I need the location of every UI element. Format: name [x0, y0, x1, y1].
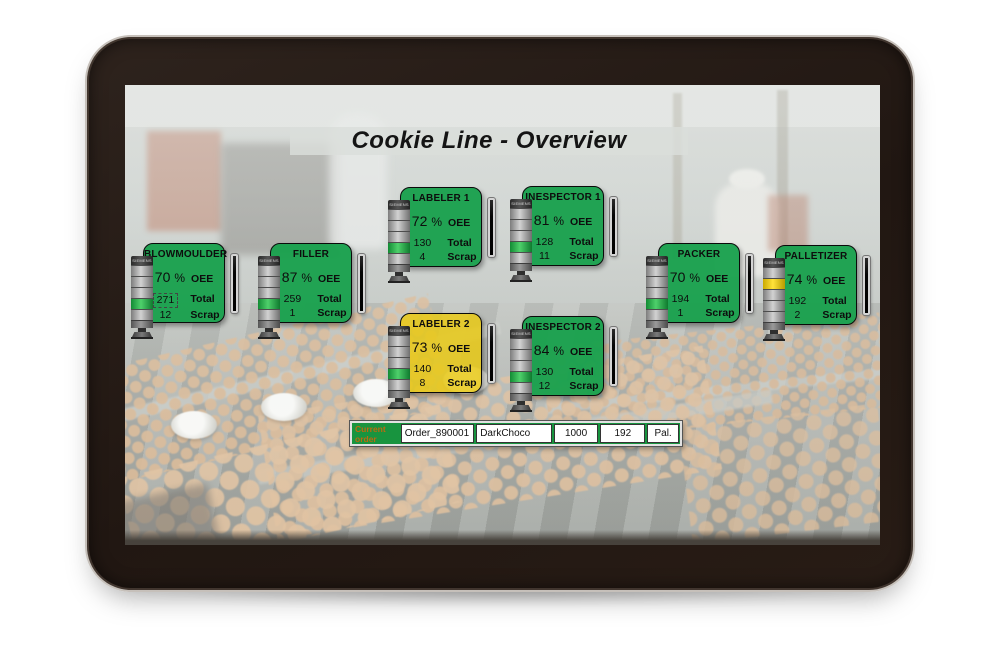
scrap-value: 2 — [780, 309, 814, 322]
stack-light-base — [388, 264, 410, 272]
hmi-overlay: Cookie Line - Overview SIEMENS — [125, 85, 880, 545]
scrap-value: 1 — [275, 307, 309, 320]
order-produced-field[interactable]: 192 — [600, 424, 645, 443]
light-segment — [646, 276, 668, 287]
total-label: Total — [447, 363, 476, 376]
stack-light-foot — [764, 334, 784, 339]
light-segment — [763, 300, 785, 311]
stack-light-cap: SIEMENS — [510, 329, 532, 338]
stack-light-cap: SIEMENS — [646, 256, 668, 265]
stack-light-base — [510, 393, 532, 401]
total-value: 259 — [275, 293, 309, 306]
stack-light-icon: SIEMENS — [763, 258, 785, 341]
light-segment — [388, 346, 410, 357]
light-segment — [510, 208, 532, 219]
stack-light-mat — [258, 337, 280, 339]
light-segment-green — [510, 241, 532, 252]
stack-light-base — [258, 320, 280, 328]
level-indicator-bar — [746, 254, 753, 313]
machine-panel-filler[interactable]: FILLER 87 % OEE 259 Total 1 Scrap — [270, 243, 352, 323]
brand-label: SIEMENS — [389, 328, 408, 333]
oee-value: 74 — [787, 271, 803, 287]
machine-panel-packer[interactable]: PACKER 70 % OEE 194 Total 1 Scrap — [658, 243, 740, 323]
stack-light-foot — [647, 332, 667, 337]
total-value: 130 — [405, 237, 439, 250]
oee-value: 70 — [670, 269, 686, 285]
stack-light-stem — [138, 328, 146, 332]
scrap-value: 12 — [527, 380, 561, 393]
light-segment-green — [388, 242, 410, 253]
stack-light-mat — [388, 407, 410, 409]
percent-sign: % — [806, 273, 817, 287]
stack-light-base — [763, 322, 785, 330]
scrap-label: Scrap — [447, 377, 476, 390]
scrap-value: 12 — [148, 309, 182, 322]
stack-light-stem — [265, 328, 273, 332]
level-indicator-bar — [488, 324, 495, 383]
light-segment — [258, 287, 280, 298]
current-order-label: Current order — [353, 424, 399, 443]
stack-light-stem — [395, 272, 403, 276]
scrap-value: 8 — [405, 377, 439, 390]
stack-light-base — [646, 320, 668, 328]
scrap-label: Scrap — [705, 307, 734, 320]
level-indicator-bar — [231, 254, 238, 313]
machine-name: INESPECTOR 1 — [523, 192, 603, 203]
scrap-value: 4 — [405, 251, 439, 264]
percent-sign: % — [431, 215, 442, 229]
stack-light-icon: SIEMENS — [510, 199, 532, 282]
machine-labeler-2: SIEMENS LABELER 2 73 — [388, 313, 498, 421]
stack-light-foot — [389, 402, 409, 407]
stack-light-cap: SIEMENS — [510, 199, 532, 208]
light-segment — [763, 311, 785, 322]
total-value: 194 — [663, 293, 697, 306]
stack-light-foot — [511, 275, 531, 280]
brand-label: SIEMENS — [511, 331, 530, 336]
oee-label: OEE — [318, 273, 340, 285]
oee-label: OEE — [570, 216, 592, 228]
stack-light-mat — [763, 339, 785, 341]
oee-value: 84 — [534, 342, 550, 358]
percent-sign: % — [174, 271, 185, 285]
scrap-label: Scrap — [822, 309, 851, 322]
light-segment-green — [131, 298, 153, 309]
light-segment — [388, 220, 410, 231]
total-value: 192 — [780, 295, 814, 308]
light-segment — [131, 265, 153, 276]
brand-label: SIEMENS — [764, 260, 783, 265]
stack-light-base — [510, 263, 532, 271]
tablet-device: Cookie Line - Overview SIEMENS — [85, 35, 915, 592]
machine-inespector-2: SIEMENS INESPECTOR 2 8 — [510, 316, 620, 424]
stack-light-mat — [510, 410, 532, 412]
light-segment — [131, 309, 153, 320]
machine-name: LABELER 1 — [401, 193, 481, 204]
hmi-screen: Cookie Line - Overview SIEMENS — [125, 85, 880, 545]
machine-name: INESPECTOR 2 — [523, 322, 603, 333]
oee-label: OEE — [706, 273, 728, 285]
total-label: Total — [190, 293, 219, 308]
machine-name: BLOWMOULDER — [144, 249, 224, 260]
order-unit-field[interactable]: Pal. — [647, 424, 679, 443]
machine-panel-labeler-2[interactable]: LABELER 2 73 % OEE 140 Total 8 Scrap — [400, 313, 482, 393]
oee-value: 73 — [412, 339, 428, 355]
stack-light-stem — [517, 271, 525, 275]
machine-name: PACKER — [659, 249, 739, 260]
brand-label: SIEMENS — [259, 258, 278, 263]
light-segment-green — [388, 368, 410, 379]
light-segment — [510, 230, 532, 241]
light-segment — [388, 253, 410, 264]
current-order-bar: Current order Order_890001 DarkChoco 100… — [350, 421, 682, 446]
light-segment — [388, 231, 410, 242]
machine-palletizer: SIEMENS PALLETIZER 74 — [763, 245, 873, 353]
stack-light-foot — [132, 332, 152, 337]
total-label: Total — [447, 237, 476, 250]
machine-panel-inespector-2[interactable]: INESPECTOR 2 84 % OEE 130 Total 12 Scrap — [522, 316, 604, 396]
machine-blowmoulder: SIEMENS BLOWMOULDER 70 — [131, 243, 241, 351]
stack-light-icon: SIEMENS — [258, 256, 280, 339]
light-segment — [258, 276, 280, 287]
light-segment — [388, 379, 410, 390]
machine-panel-labeler-1[interactable]: LABELER 1 72 % OEE 130 Total 4 Scrap — [400, 187, 482, 267]
stack-light-icon: SIEMENS — [388, 200, 410, 283]
stack-light-foot — [389, 276, 409, 281]
total-label: Total — [317, 293, 346, 306]
oee-value: 70 — [155, 269, 171, 285]
stack-light-cap: SIEMENS — [763, 258, 785, 267]
machine-filler: SIEMENS FILLER 87 — [258, 243, 368, 351]
light-segment — [510, 252, 532, 263]
light-segment-green — [510, 371, 532, 382]
total-value-selected[interactable]: 271 — [153, 293, 179, 308]
light-segment-green — [258, 298, 280, 309]
stack-light-icon: SIEMENS — [510, 329, 532, 412]
total-label: Total — [569, 366, 598, 379]
oee-value: 81 — [534, 212, 550, 228]
stack-light-stem — [517, 401, 525, 405]
percent-sign: % — [431, 341, 442, 355]
light-segment — [510, 360, 532, 371]
light-segment-green — [646, 298, 668, 309]
order-quantity-field[interactable]: 1000 — [554, 424, 599, 443]
percent-sign: % — [301, 271, 312, 285]
scrap-label: Scrap — [569, 250, 598, 263]
brand-label: SIEMENS — [132, 258, 151, 263]
machine-labeler-1: SIEMENS LABELER 1 72 — [388, 187, 498, 295]
brand-label: SIEMENS — [389, 202, 408, 207]
stack-light-cap: SIEMENS — [258, 256, 280, 265]
machine-name: PALLETIZER — [776, 251, 856, 262]
light-segment — [763, 267, 785, 278]
level-indicator-bar — [610, 197, 617, 256]
page: Cookie Line - Overview SIEMENS — [0, 0, 1000, 667]
scrap-label: Scrap — [447, 251, 476, 264]
brand-label: SIEMENS — [647, 258, 666, 263]
scrap-label: Scrap — [190, 309, 219, 322]
page-title-bar: Cookie Line - Overview — [290, 127, 688, 155]
machine-name: FILLER — [271, 249, 351, 260]
total-label: Total — [705, 293, 734, 306]
light-segment — [258, 309, 280, 320]
stack-light-mat — [510, 280, 532, 282]
light-segment — [388, 335, 410, 346]
stack-light-icon: SIEMENS — [388, 326, 410, 409]
light-segment — [763, 289, 785, 300]
oee-label: OEE — [191, 273, 213, 285]
stack-light-mat — [388, 281, 410, 283]
light-segment — [646, 309, 668, 320]
stack-light-foot — [511, 405, 531, 410]
light-segment — [646, 287, 668, 298]
light-segment — [510, 338, 532, 349]
stack-light-base — [131, 320, 153, 328]
machine-panel-blowmoulder[interactable]: BLOWMOULDER 70 % OEE 271 Total 12 Scrap — [143, 243, 225, 323]
stack-light-stem — [395, 398, 403, 402]
percent-sign: % — [689, 271, 700, 285]
total-label: Total — [822, 295, 851, 308]
scrap-label: Scrap — [569, 380, 598, 393]
light-segment — [258, 265, 280, 276]
light-segment — [388, 357, 410, 368]
stack-light-mat — [646, 337, 668, 339]
order-product-field[interactable]: DarkChoco — [476, 424, 552, 443]
stack-light-foot — [259, 332, 279, 337]
percent-sign: % — [553, 214, 564, 228]
light-segment — [646, 265, 668, 276]
stack-light-stem — [653, 328, 661, 332]
oee-label: OEE — [448, 217, 470, 229]
machine-name: LABELER 2 — [401, 319, 481, 330]
stack-light-cap: SIEMENS — [131, 256, 153, 265]
stack-light-mat — [131, 337, 153, 339]
machine-packer: SIEMENS PACKER 70 — [646, 243, 756, 351]
scrap-value: 1 — [663, 307, 697, 320]
light-segment — [510, 219, 532, 230]
light-segment — [388, 209, 410, 220]
brand-label: SIEMENS — [511, 201, 530, 206]
total-value: 128 — [527, 236, 561, 249]
page-title: Cookie Line - Overview — [351, 127, 626, 155]
stack-light-base — [388, 390, 410, 398]
light-segment — [131, 287, 153, 298]
level-indicator-bar — [610, 327, 617, 386]
machine-panel-inespector-1[interactable]: INESPECTOR 1 81 % OEE 128 Total 11 Scrap — [522, 186, 604, 266]
light-segment — [510, 382, 532, 393]
oee-value: 72 — [412, 213, 428, 229]
light-segment — [131, 276, 153, 287]
stack-light-icon: SIEMENS — [131, 256, 153, 339]
machine-inespector-1: SIEMENS INESPECTOR 1 8 — [510, 186, 620, 294]
stack-light-cap: SIEMENS — [388, 200, 410, 209]
oee-label: OEE — [448, 343, 470, 355]
oee-value: 87 — [282, 269, 298, 285]
light-segment-yellow — [763, 278, 785, 289]
level-indicator-bar — [863, 256, 870, 315]
total-value: 130 — [527, 366, 561, 379]
level-indicator-bar — [488, 198, 495, 257]
machine-panel-palletizer[interactable]: PALLETIZER 74 % OEE 192 Total 2 Scrap — [775, 245, 857, 325]
oee-label: OEE — [570, 346, 592, 358]
stack-light-stem — [770, 330, 778, 334]
total-value: 140 — [405, 363, 439, 376]
stack-light-cap: SIEMENS — [388, 326, 410, 335]
order-id-field[interactable]: Order_890001 — [401, 424, 475, 443]
percent-sign: % — [553, 344, 564, 358]
scrap-value: 11 — [527, 250, 561, 263]
total-label: Total — [569, 236, 598, 249]
light-segment — [510, 349, 532, 360]
level-indicator-bar — [358, 254, 365, 313]
stack-light-icon: SIEMENS — [646, 256, 668, 339]
scrap-label: Scrap — [317, 307, 346, 320]
oee-label: OEE — [823, 275, 845, 287]
